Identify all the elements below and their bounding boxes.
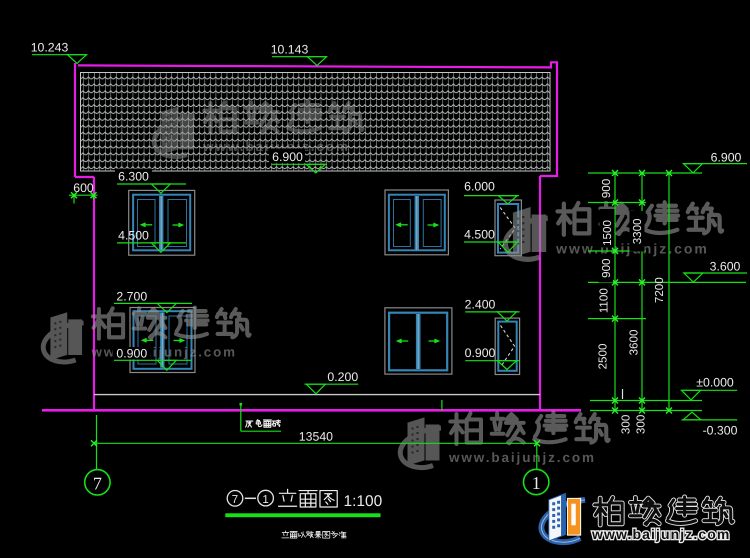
svg-text:6.900: 6.900 — [711, 150, 742, 164]
svg-text:6.000: 6.000 — [464, 179, 495, 193]
svg-text:7: 7 — [232, 494, 238, 506]
svg-text:1: 1 — [262, 494, 268, 506]
svg-text:1100: 1100 — [597, 288, 610, 313]
svg-text:7: 7 — [93, 474, 102, 494]
svg-text:10.143: 10.143 — [271, 43, 309, 57]
svg-text:0.200: 0.200 — [327, 370, 358, 384]
svg-text:3.600: 3.600 — [710, 259, 741, 273]
svg-text:0.900: 0.900 — [465, 346, 496, 360]
svg-text:300: 300 — [619, 415, 632, 434]
svg-text:900: 900 — [600, 259, 613, 278]
svg-text:6.900: 6.900 — [272, 150, 303, 164]
svg-text:www.baijunjz.com: www.baijunjz.com — [591, 526, 730, 542]
svg-text:0.900: 0.900 — [116, 346, 147, 360]
svg-text:±0.000: ±0.000 — [696, 375, 734, 389]
svg-text:13540: 13540 — [299, 430, 333, 444]
svg-text:900: 900 — [600, 179, 613, 198]
svg-text:300: 300 — [634, 415, 647, 434]
svg-text:-0.300: -0.300 — [703, 424, 738, 438]
svg-text:3300: 3300 — [631, 219, 644, 245]
svg-text:10.243: 10.243 — [31, 41, 69, 55]
svg-text:7200: 7200 — [653, 277, 666, 303]
svg-text:2.400: 2.400 — [465, 297, 496, 311]
svg-text:6.300: 6.300 — [118, 170, 149, 184]
svg-text:4.500: 4.500 — [118, 228, 149, 242]
svg-text:2500: 2500 — [597, 344, 610, 370]
svg-text:1:100: 1:100 — [344, 493, 383, 510]
svg-text:4.500: 4.500 — [464, 227, 495, 241]
svg-text:3600: 3600 — [628, 330, 641, 356]
svg-text:2.700: 2.700 — [116, 290, 147, 304]
svg-text:1500: 1500 — [601, 220, 614, 246]
svg-text:1: 1 — [532, 473, 541, 493]
